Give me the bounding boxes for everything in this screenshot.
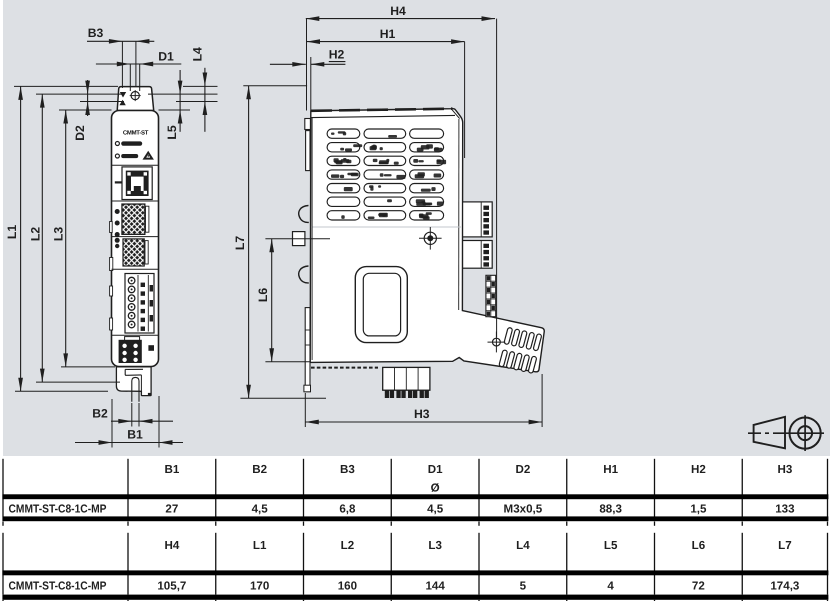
svg-text:L5: L5 — [604, 539, 618, 552]
svg-text:B3: B3 — [88, 26, 104, 40]
svg-text:144: 144 — [425, 580, 445, 593]
svg-text:L5: L5 — [165, 125, 179, 139]
svg-text:M3x0,5: M3x0,5 — [504, 502, 543, 515]
svg-text:CMMT-ST-C8-1C-MP: CMMT-ST-C8-1C-MP — [9, 502, 107, 515]
svg-text:4,5: 4,5 — [252, 502, 269, 515]
svg-text:H4: H4 — [164, 539, 179, 552]
svg-text:L6: L6 — [692, 539, 706, 552]
svg-text:H2: H2 — [691, 463, 706, 476]
svg-text:B1: B1 — [127, 428, 143, 442]
svg-text:1,5: 1,5 — [690, 502, 707, 515]
svg-text:B2: B2 — [252, 463, 267, 476]
svg-text:72: 72 — [692, 580, 705, 593]
svg-text:L3: L3 — [52, 227, 66, 241]
svg-text:88,3: 88,3 — [599, 502, 622, 515]
svg-text:D1: D1 — [428, 463, 443, 476]
svg-text:5: 5 — [520, 580, 527, 593]
svg-text:170: 170 — [250, 580, 269, 593]
svg-text:D1: D1 — [158, 50, 174, 64]
svg-text:L2: L2 — [28, 227, 42, 241]
svg-text:H3: H3 — [777, 463, 792, 476]
svg-text:L2: L2 — [341, 539, 355, 552]
svg-text:L1: L1 — [253, 539, 267, 552]
svg-text:27: 27 — [165, 502, 178, 515]
svg-text:H1: H1 — [603, 463, 618, 476]
svg-text:4: 4 — [607, 580, 614, 593]
svg-text:CMMT-ST-C8-1C-MP: CMMT-ST-C8-1C-MP — [9, 580, 107, 593]
svg-text:L4: L4 — [191, 47, 205, 61]
svg-text:B2: B2 — [92, 407, 108, 421]
svg-text:B3: B3 — [340, 463, 355, 476]
svg-text:H2: H2 — [329, 48, 345, 62]
svg-text:H3: H3 — [414, 407, 430, 421]
svg-text:L3: L3 — [428, 539, 442, 552]
svg-text:6,8: 6,8 — [339, 502, 356, 515]
svg-text:Ø: Ø — [431, 482, 440, 495]
svg-text:4,5: 4,5 — [427, 502, 444, 515]
svg-text:160: 160 — [338, 580, 357, 593]
svg-text:L7: L7 — [233, 236, 247, 250]
svg-text:CMMT-ST: CMMT-ST — [123, 129, 149, 136]
svg-text:105,7: 105,7 — [157, 580, 186, 593]
svg-text:133: 133 — [775, 502, 795, 515]
svg-text:H4: H4 — [390, 4, 406, 18]
svg-text:B1: B1 — [164, 463, 179, 476]
svg-text:L4: L4 — [516, 539, 530, 552]
svg-text:L7: L7 — [778, 539, 792, 552]
svg-text:H1: H1 — [380, 27, 396, 41]
svg-text:L6: L6 — [256, 288, 270, 302]
svg-text:L1: L1 — [5, 225, 19, 239]
svg-text:D2: D2 — [73, 125, 87, 141]
svg-text:D2: D2 — [515, 463, 530, 476]
svg-text:174,3: 174,3 — [770, 580, 800, 593]
